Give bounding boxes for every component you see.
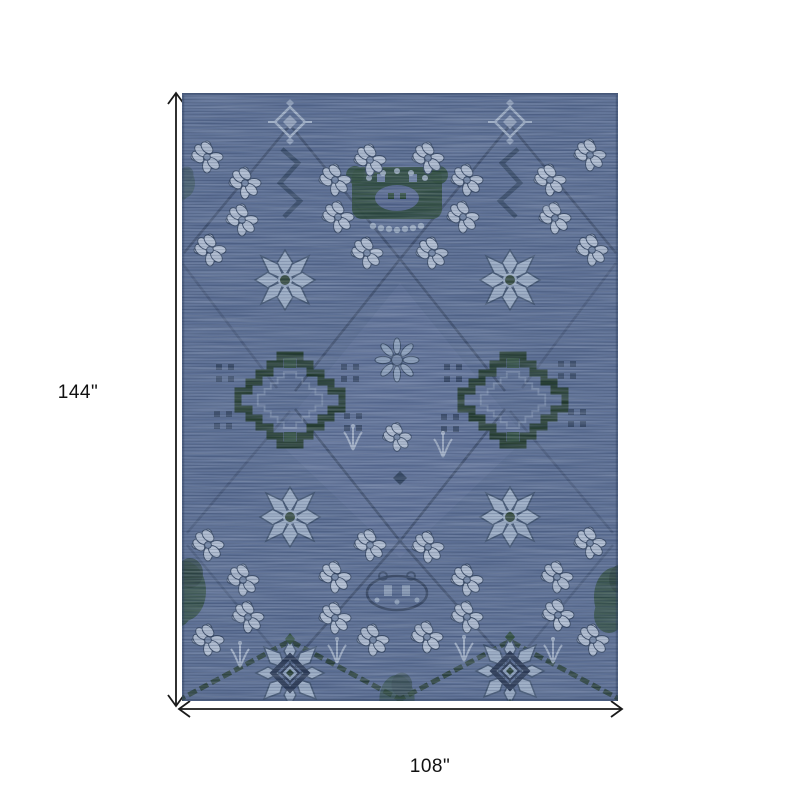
page-background: 144" 108"	[0, 0, 800, 800]
width-dimension-arrow-icon	[176, 698, 626, 720]
rug-image	[182, 93, 618, 701]
height-dimension-label: 144"	[40, 382, 116, 404]
width-dimension-label: 108"	[392, 756, 468, 778]
